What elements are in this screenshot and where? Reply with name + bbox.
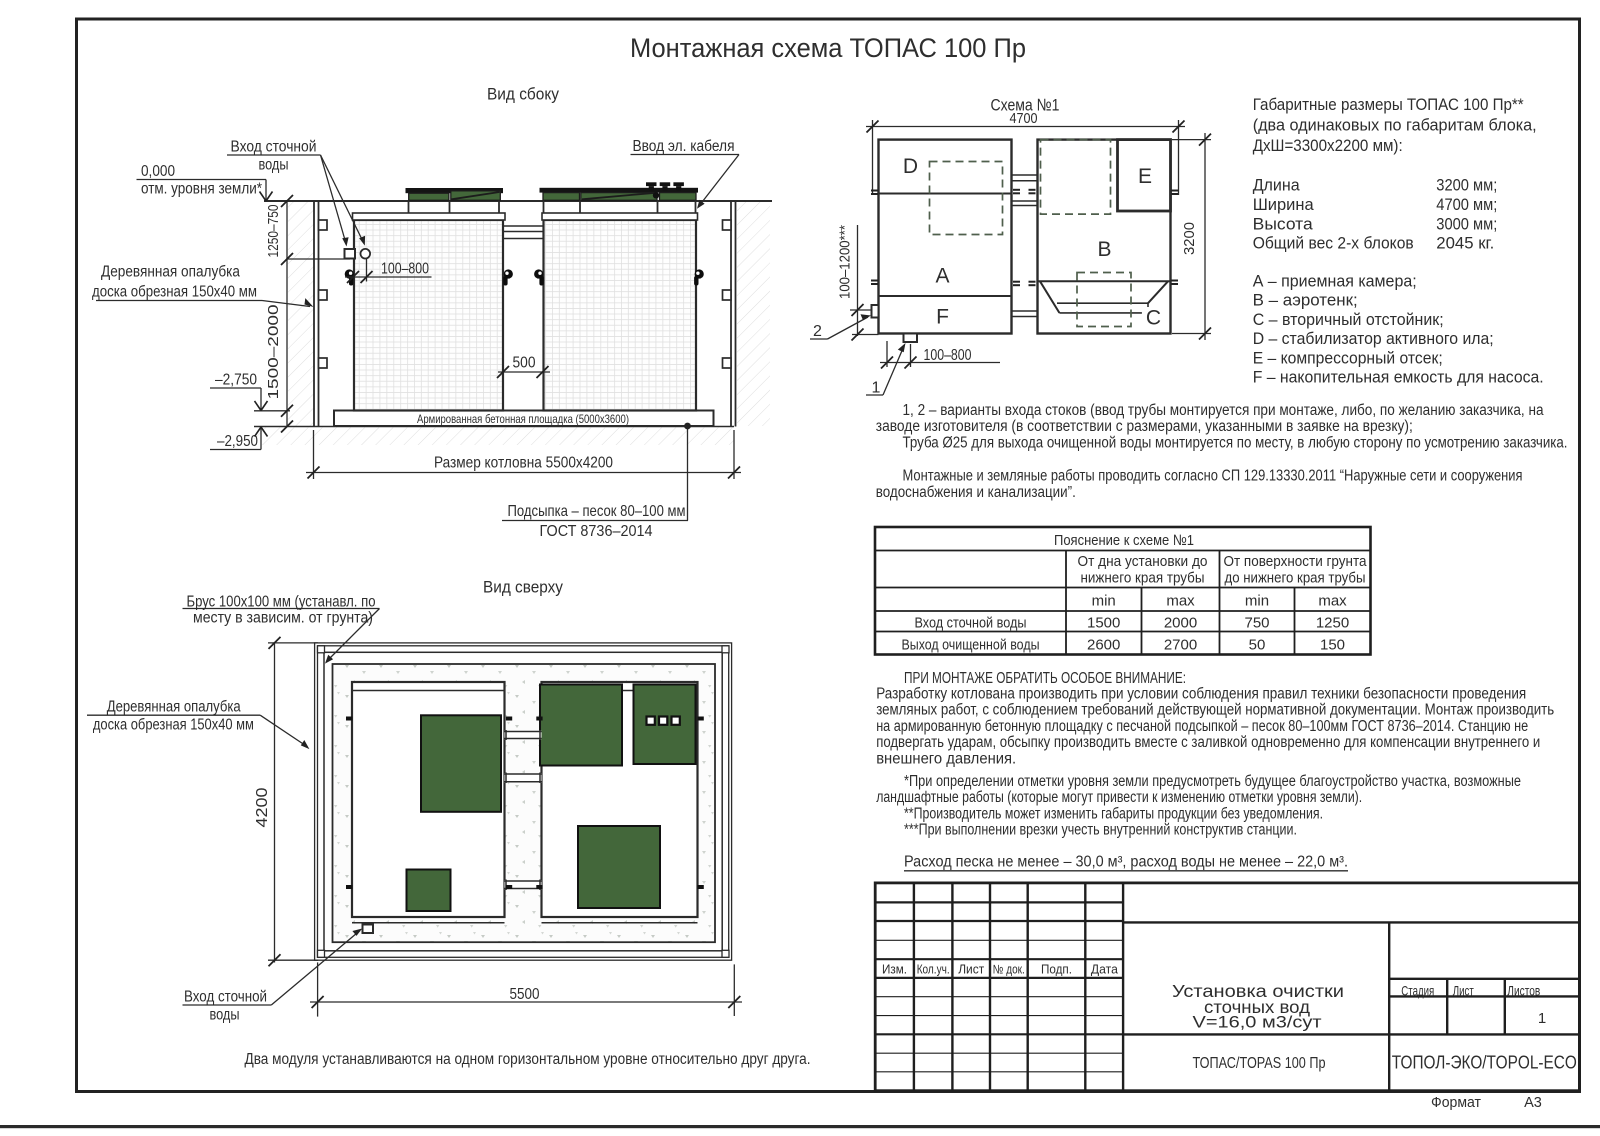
svg-text:500: 500 [513, 355, 536, 372]
svg-text:1: 1 [1538, 1010, 1546, 1027]
svg-text:A: A [935, 265, 949, 288]
svg-text:внешнего давления.: внешнего давления. [876, 750, 1016, 767]
svg-text:3200: 3200 [1182, 222, 1198, 255]
svg-text:Лист: Лист [958, 963, 984, 977]
svg-text:max: max [1166, 593, 1195, 610]
svg-text:–2,750: –2,750 [215, 372, 257, 389]
svg-text:А – приемная камера;: А – приемная камера; [1253, 273, 1417, 291]
svg-text:воды: воды [210, 1007, 240, 1024]
svg-text:Стадия: Стадия [1401, 982, 1434, 998]
svg-text:Вид сверху: Вид сверху [483, 578, 563, 597]
svg-text:3200 мм;: 3200 мм; [1436, 177, 1497, 195]
svg-text:на армированную бетонную площа: на армированную бетонную площадку с песч… [876, 718, 1528, 735]
svg-text:1: 1 [872, 380, 881, 397]
svg-text:1, 2 – варианты входа стоков: 1, 2 – варианты входа стоков (ввод трубы… [903, 402, 1544, 419]
svg-text:min: min [1092, 593, 1116, 610]
svg-text:земляных работ, с соблюдением: земляных работ, с соблюдением требований… [876, 702, 1554, 719]
svg-text:***При выполнении врезки учест: ***При выполнении врезки учесть внутренн… [904, 822, 1297, 839]
svg-text:B: B [1097, 238, 1111, 261]
svg-text:доска обрезная 150х40 мм: доска обрезная 150х40 мм [92, 284, 257, 301]
svg-text:ТОПАС/TOPAS 100 Пр: ТОПАС/TOPAS 100 Пр [1193, 1055, 1326, 1072]
svg-text:100–800: 100–800 [381, 261, 429, 278]
svg-text:0,000: 0,000 [141, 163, 175, 180]
svg-text:F – накопительная емкость для: F – накопительная емкость для насоса. [1253, 369, 1544, 387]
svg-text:F: F [936, 306, 949, 329]
svg-text:1250–750: 1250–750 [266, 205, 282, 258]
svg-text:2: 2 [813, 323, 822, 340]
svg-text:**Производитель может изменить: **Производитель может изменить габариты … [904, 805, 1323, 822]
svg-text:С – вторичный отстойник;: С – вторичный отстойник; [1253, 311, 1444, 329]
svg-text:Пояснение к схеме №1: Пояснение к схеме №1 [1054, 532, 1194, 549]
svg-text:Монтажные и земляные работы пр: Монтажные и земляные работы проводить со… [903, 468, 1523, 485]
svg-text:Габаритные размеры ТОПАС 100 П: Габаритные размеры ТОПАС 100 Пр** [1253, 96, 1525, 114]
svg-text:100–800: 100–800 [924, 347, 972, 364]
svg-text:Высота: Высота [1253, 215, 1314, 233]
svg-text:месту в зависим. от грунта): месту в зависим. от грунта) [193, 610, 373, 627]
svg-text:4200: 4200 [254, 787, 271, 827]
svg-text:Два модуля устанавливаются на: Два модуля устанавливаются на одном гори… [245, 1051, 811, 1068]
svg-text:отм. уровня земли*: отм. уровня земли* [141, 181, 262, 198]
svg-text:доска обрезная 150х40 мм: доска обрезная 150х40 мм [93, 717, 254, 734]
svg-text:Вход сточной: Вход сточной [184, 989, 267, 1006]
svg-text:ГОСТ 8736–2014: ГОСТ 8736–2014 [540, 523, 653, 540]
svg-text:От дна установки до: От дна установки до [1078, 554, 1208, 570]
svg-text:Кол.уч.: Кол.уч. [917, 963, 950, 977]
svg-text:4700: 4700 [1010, 110, 1038, 127]
svg-text:750: 750 [1244, 615, 1269, 632]
svg-text:1250: 1250 [1316, 615, 1349, 632]
svg-text:50: 50 [1249, 637, 1266, 654]
svg-text:1500–2000: 1500–2000 [266, 305, 282, 400]
svg-text:(два одинаковых по габаритам б: (два одинаковых по габаритам блока, [1253, 117, 1537, 135]
svg-text:Выход очищенной воды: Выход очищенной воды [902, 637, 1040, 654]
svg-text:От поверхности грунта: От поверхности грунта [1224, 554, 1368, 570]
svg-text:100–1200***: 100–1200*** [838, 225, 854, 299]
svg-text:3000 мм;: 3000 мм; [1436, 215, 1497, 233]
svg-text:Листов: Листов [1507, 982, 1540, 998]
svg-text:150: 150 [1320, 637, 1345, 654]
svg-text:Монтажная схема ТОПАС 100 Пр: Монтажная схема ТОПАС 100 Пр [630, 33, 1026, 63]
svg-text:ПРИ МОНТАЖЕ ОБРАТИТЬ ОСОБОЕ ВН: ПРИ МОНТАЖЕ ОБРАТИТЬ ОСОБОЕ ВНИМАНИЕ: [904, 670, 1186, 687]
svg-text:до нижнего края трубы: до нижнего края трубы [1225, 571, 1366, 587]
svg-text:E: E [1138, 165, 1152, 188]
svg-text:Подп.: Подп. [1041, 963, 1072, 977]
svg-text:№ док.: № док. [993, 963, 1025, 977]
svg-text:заводе изготовителя (в соответ: заводе изготовителя (в соответствии с ра… [876, 418, 1413, 435]
svg-text:Е – компрессорный отсек;: Е – компрессорный отсек; [1253, 349, 1443, 367]
svg-text:D: D [903, 155, 918, 178]
svg-text:2600: 2600 [1087, 637, 1120, 654]
svg-text:водоснабжения и канализации”.: водоснабжения и канализации”. [876, 484, 1076, 501]
svg-text:нижнего края трубы: нижнего края трубы [1081, 571, 1205, 587]
svg-text:подвергать ударам, обсыпку про: подвергать ударам, обсыпку производить в… [876, 734, 1540, 751]
svg-text:min: min [1245, 593, 1269, 610]
svg-text:1500: 1500 [1087, 615, 1120, 632]
svg-text:Общий вес 2-х блоков: Общий вес 2-х блоков [1253, 235, 1414, 253]
svg-text:ТОПОЛ-ЭКО/TOPOL-ECO: ТОПОЛ-ЭКО/TOPOL-ECO [1392, 1052, 1577, 1073]
svg-text:Вход сточной: Вход сточной [231, 139, 317, 156]
svg-text:Размер котловна 5500х4200: Размер котловна 5500х4200 [434, 455, 613, 472]
svg-text:Вход сточной воды: Вход сточной воды [915, 615, 1027, 632]
svg-text:Деревянная опалубка: Деревянная опалубка [107, 699, 241, 716]
svg-text:Длина: Длина [1253, 177, 1301, 195]
svg-text:D – стабилизатор активного ила: D – стабилизатор активного ила; [1253, 330, 1494, 348]
svg-text:Труба Ø25 для выхода очищенной: Труба Ø25 для выхода очищенной воды монт… [903, 435, 1568, 452]
svg-text:max: max [1318, 593, 1347, 610]
svg-text:2045 кг.: 2045 кг. [1436, 235, 1494, 253]
svg-text:2700: 2700 [1164, 637, 1197, 654]
svg-text:В – аэротенк;: В – аэротенк; [1253, 292, 1358, 310]
svg-text:А3: А3 [1524, 1095, 1542, 1111]
svg-text:Ширина: Ширина [1253, 196, 1315, 214]
svg-text:Формат: Формат [1431, 1095, 1481, 1111]
svg-text:Вид сбоку: Вид сбоку [487, 85, 559, 104]
svg-text:Дата: Дата [1091, 963, 1118, 977]
svg-text:4700 мм;: 4700 мм; [1436, 196, 1497, 214]
svg-text:Подсыпка – песок 80–100 мм: Подсыпка – песок 80–100 мм [508, 503, 686, 520]
svg-text:5500: 5500 [510, 986, 540, 1003]
svg-text:Лист: Лист [1453, 982, 1474, 998]
svg-text:*При определении отметки уровн: *При определении отметки уровня земли пр… [904, 773, 1521, 790]
svg-text:2000: 2000 [1164, 615, 1197, 632]
svg-text:Разработку котлована производи: Разработку котлована производить при усл… [876, 686, 1526, 703]
svg-text:Армированная бетонная площадка: Армированная бетонная площадка (5000х360… [417, 412, 629, 426]
svg-text:Ввод эл. кабеля: Ввод эл. кабеля [633, 138, 735, 155]
svg-text:ландшафтные работы (которые мо: ландшафтные работы (которые могут привес… [876, 789, 1362, 806]
svg-text:Деревянная опалубка: Деревянная опалубка [101, 264, 240, 281]
svg-text:V=16,0 м3/сут: V=16,0 м3/сут [1193, 1013, 1322, 1032]
svg-text:ДхШ=3300х2200 мм):: ДхШ=3300х2200 мм): [1253, 137, 1403, 155]
svg-text:Изм.: Изм. [882, 963, 907, 977]
svg-text:воды: воды [259, 157, 289, 174]
svg-text:Расход песка не менее – 30,0 м: Расход песка не менее – 30,0 м³, расход … [904, 854, 1348, 871]
svg-text:C: C [1146, 307, 1161, 330]
svg-text:–2,950: –2,950 [217, 433, 258, 450]
